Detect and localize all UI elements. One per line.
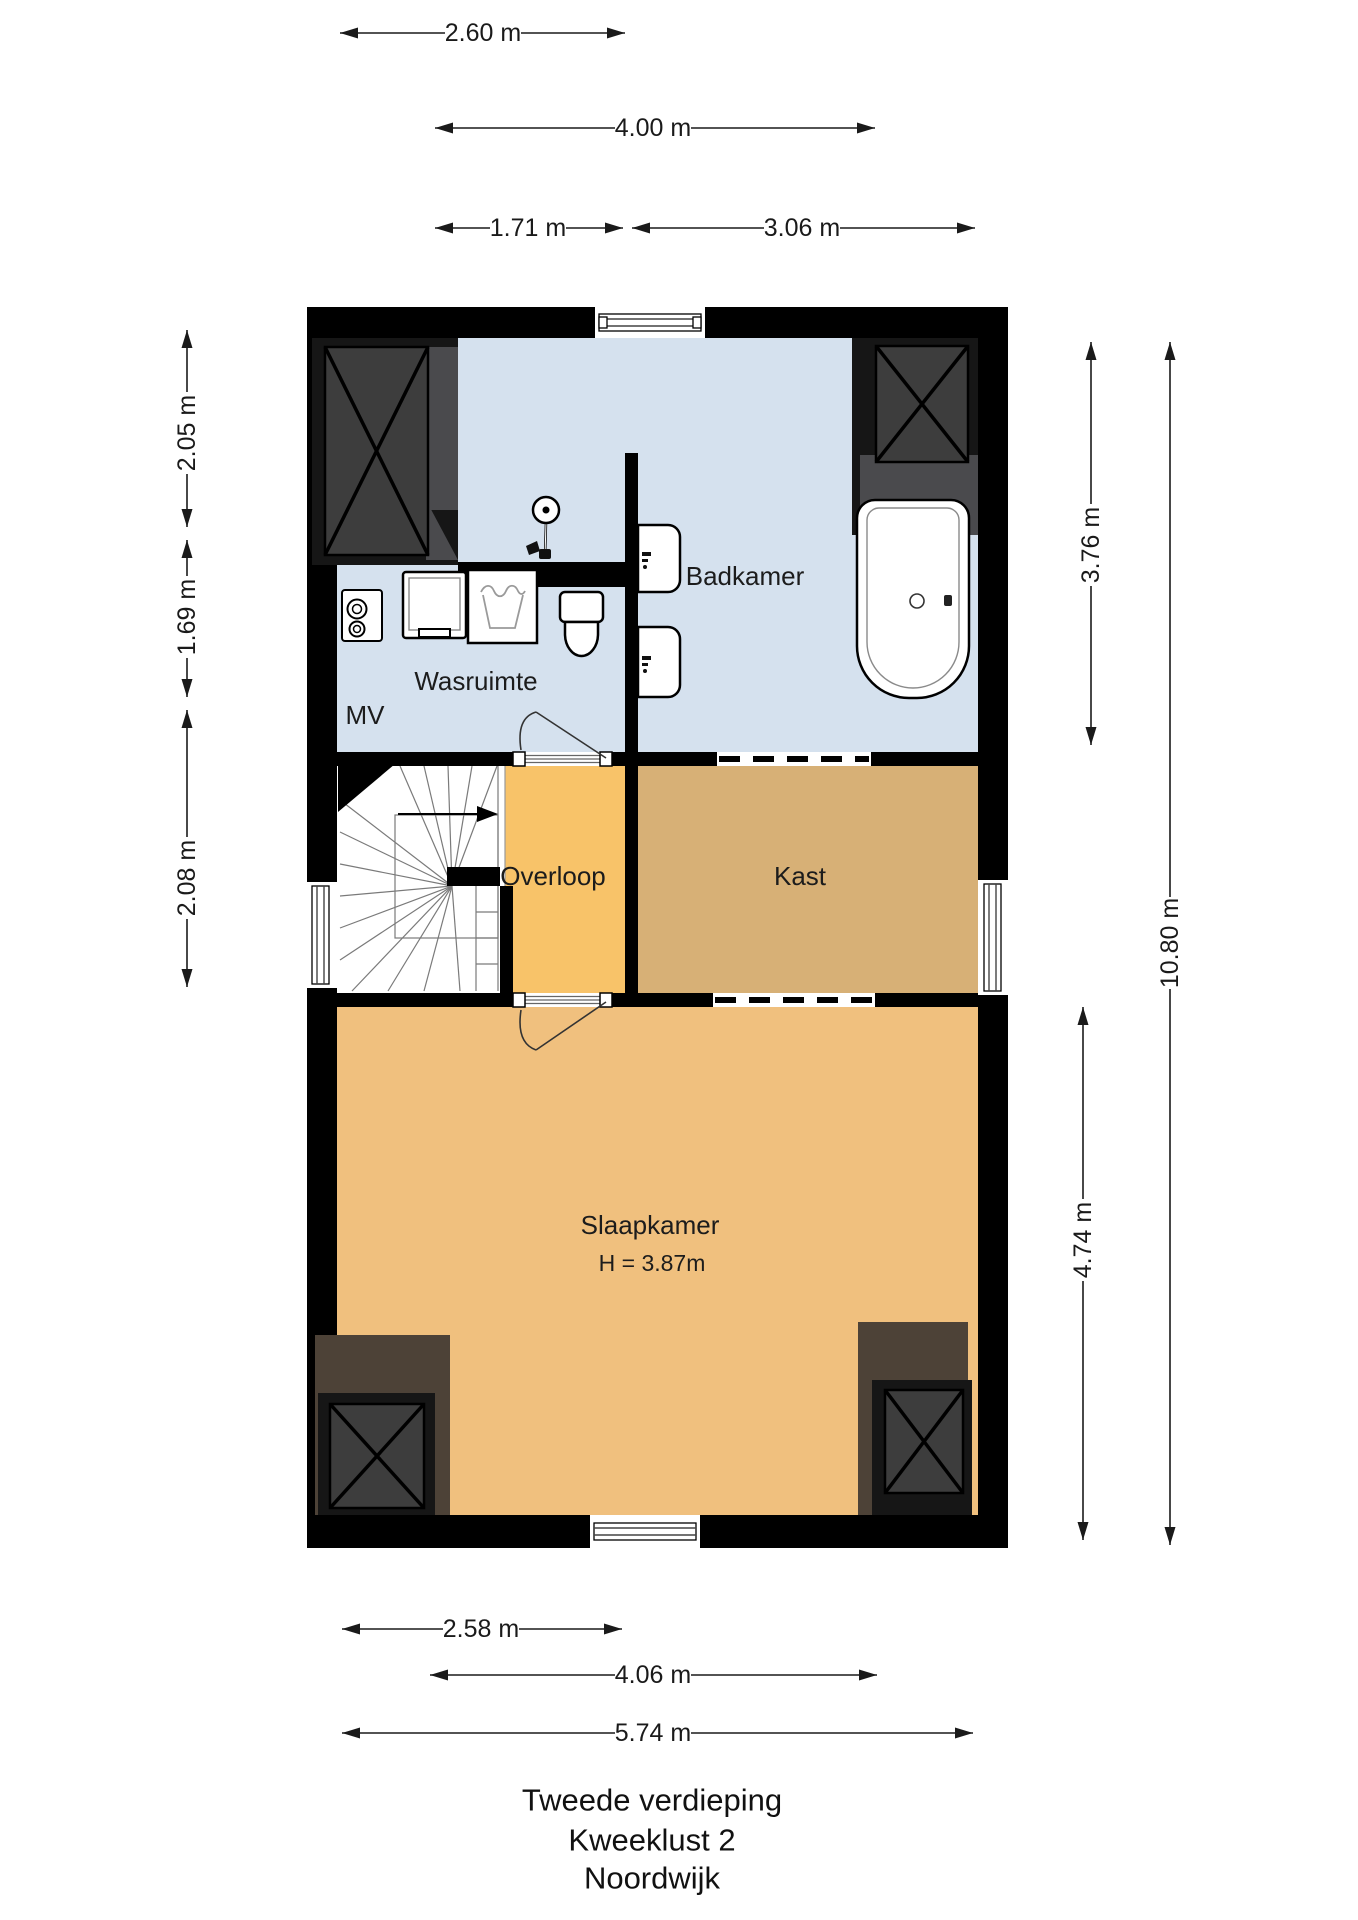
svg-text:5.74 m: 5.74 m: [615, 1719, 691, 1747]
title-address: Kweeklust 2: [568, 1823, 735, 1858]
svg-text:2.05 m: 2.05 m: [173, 395, 201, 471]
dim-top-1: 2.60 m: [340, 19, 625, 47]
svg-text:4.06 m: 4.06 m: [615, 1661, 691, 1689]
bathroom-divider-wall: [625, 453, 638, 1007]
room-label-kast: Kast: [774, 861, 827, 891]
room-label-slaapkamer: Slaapkamer: [581, 1210, 720, 1240]
floorplan: Badkamer Wasruimte MV Overloop Kast Slaa…: [307, 307, 1008, 1548]
title-floor: Tweede verdieping: [522, 1783, 782, 1818]
svg-text:10.80 m: 10.80 m: [1156, 898, 1184, 988]
washing-machine-icon: [403, 572, 466, 638]
floorplan-page: Badkamer Wasruimte MV Overloop Kast Slaa…: [0, 0, 1358, 1920]
dim-right-2: 10.80 m: [1156, 342, 1184, 1545]
sink-icon-lower: [638, 627, 680, 697]
svg-text:2.60 m: 2.60 m: [445, 19, 521, 47]
svg-text:2.08 m: 2.08 m: [173, 840, 201, 916]
dim-bottom-1: 2.58 m: [342, 1615, 622, 1643]
svg-text:4.74 m: 4.74 m: [1069, 1202, 1097, 1278]
boiler-icon: [342, 590, 382, 641]
bathtub-icon: [857, 500, 969, 698]
dim-left-1: 2.05 m: [173, 330, 201, 527]
shaft-top-left: [312, 338, 458, 565]
title-block: Tweede verdieping Kweeklust 2 Noordwijk: [522, 1783, 782, 1896]
sink-icon-upper: [638, 525, 680, 592]
dim-bottom-2: 4.06 m: [430, 1661, 877, 1689]
svg-text:2.58 m: 2.58 m: [443, 1615, 519, 1643]
window-left: [307, 882, 337, 988]
dim-top-3b: 3.06 m: [632, 214, 975, 242]
room-label-mv: MV: [346, 700, 386, 730]
floorplan-canvas: Badkamer Wasruimte MV Overloop Kast Slaa…: [0, 0, 1358, 1920]
room-label-badkamer: Badkamer: [686, 561, 805, 591]
laundry-sink-icon: [468, 570, 537, 643]
stair-stub-wall: [500, 886, 513, 993]
room-label-overloop: Overloop: [500, 861, 606, 891]
title-city: Noordwijk: [584, 1861, 721, 1896]
svg-text:3.76 m: 3.76 m: [1077, 507, 1105, 583]
svg-text:1.71 m: 1.71 m: [490, 214, 566, 242]
window-bottom: [590, 1515, 700, 1548]
svg-text:4.00 m: 4.00 m: [615, 114, 691, 142]
dim-right-3: 4.74 m: [1069, 1007, 1097, 1540]
dim-top-2: 4.00 m: [435, 114, 875, 142]
svg-text:3.06 m: 3.06 m: [764, 214, 840, 242]
room-label-slaapkamer-height: H = 3.87m: [599, 1250, 706, 1276]
svg-text:1.69 m: 1.69 m: [173, 579, 201, 655]
dim-bottom-3: 5.74 m: [342, 1719, 973, 1747]
dim-left-3: 2.08 m: [173, 710, 201, 987]
window-top: [595, 307, 705, 338]
shaft-bottom-left: [315, 1335, 450, 1515]
dim-top-3a: 1.71 m: [435, 214, 623, 242]
window-right: [978, 880, 1008, 995]
toilet-icon: [560, 592, 603, 656]
stair-landing-wall: [447, 867, 500, 886]
shaft-bottom-right: [858, 1322, 972, 1515]
dim-left-2: 1.69 m: [173, 540, 201, 697]
room-label-wasruimte: Wasruimte: [414, 666, 537, 696]
dim-right-1: 3.76 m: [1077, 342, 1105, 745]
